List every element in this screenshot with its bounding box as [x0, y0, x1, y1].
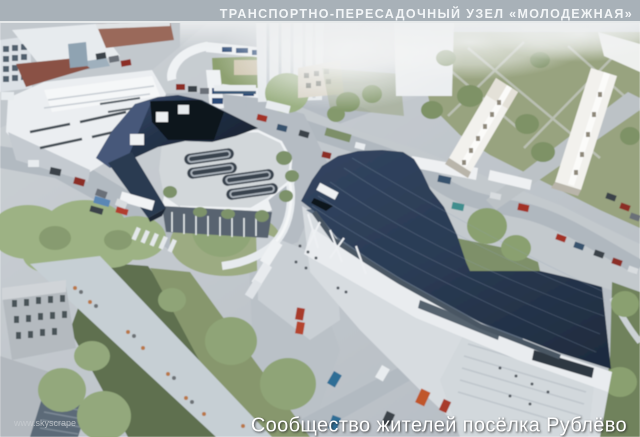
svg-text:Сообщество жителей посёлка Руб: Сообщество жителей посёлка Рублёво	[251, 415, 627, 437]
svg-text:www.skyscrape: www.skyscrape	[13, 418, 76, 428]
svg-text:ТРАНСПОРТНО-ПЕРЕСАДОЧНЫЙ УЗЕЛ: ТРАНСПОРТНО-ПЕРЕСАДОЧНЫЙ УЗЕЛ «МОЛОДЕЖНА…	[220, 6, 633, 21]
